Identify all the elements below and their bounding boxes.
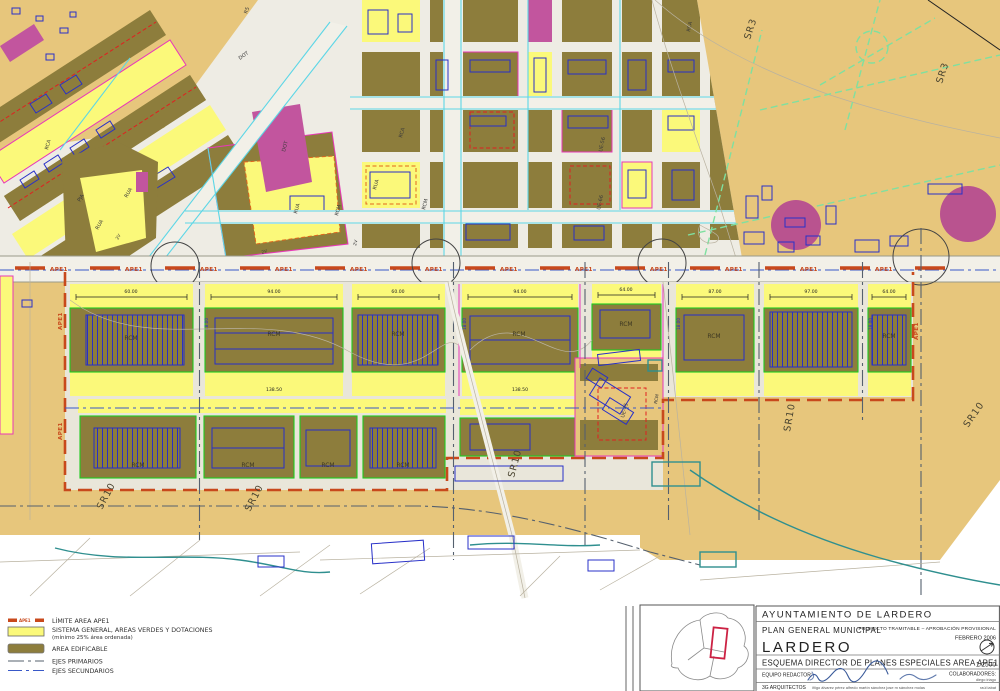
label-rcm: RCM xyxy=(882,333,895,340)
label-ape1: APE1 xyxy=(350,267,368,273)
olive-swatch xyxy=(8,644,44,653)
label-rcm: RCM xyxy=(124,335,137,342)
plan-sheet: DOT DOT RUA RUA RUA RUA PJA RCA RCA RCA … xyxy=(0,0,1000,691)
city-name: LARDERO xyxy=(762,639,852,656)
label-rcm: RCM xyxy=(267,331,280,338)
label-rcm: RCM xyxy=(321,462,334,469)
dim-b8: 64.00 xyxy=(882,289,895,295)
colaborador-name-2: raúl iabat xyxy=(980,685,997,690)
dim-small: 18.00 xyxy=(868,318,873,330)
label-ape1: APE1 xyxy=(500,267,518,273)
municipality-title: AYUNTAMIENTO DE LARDERO xyxy=(762,610,933,621)
dim-b4: 94.00 xyxy=(513,289,526,295)
ue-zone: UE-45 RCM xyxy=(575,358,663,456)
legend-sg-label: SISTEMA GENERAL, AREAS VERDES Y DOTACION… xyxy=(52,627,212,634)
label-rcm: RCM xyxy=(707,333,720,340)
label-ape1: APE1 xyxy=(875,267,893,273)
dim-small: 18.00 xyxy=(462,318,467,330)
sheet-title: ESQUEMA DIRECTOR DE PLANES ESPECIALES AR… xyxy=(762,659,998,668)
label-rcm: RCM xyxy=(131,462,144,469)
dim-bottom2: 138.50 xyxy=(512,387,528,393)
dim-small: 18.00 xyxy=(204,318,209,330)
label-ape1: APE1 xyxy=(275,267,293,273)
colaborador-name-1: diego iriago xyxy=(976,677,996,682)
label-ape1: APE1 xyxy=(58,312,64,330)
dim-b1: 60.00 xyxy=(124,289,137,295)
north-arrow-icon xyxy=(980,640,994,654)
label-rcm: RCM xyxy=(396,462,409,469)
ape1-swatch-text: APE1 xyxy=(19,618,31,623)
firm-name: 3G ARQUITECTOS xyxy=(762,685,806,691)
legend-limit-label: LÍMITE AREA APE1 xyxy=(52,616,110,625)
label-ape1: APE1 xyxy=(58,422,64,440)
inset-frame xyxy=(640,605,754,691)
label-ape1: APE1 xyxy=(800,267,818,273)
dim-b3: 60.00 xyxy=(391,289,404,295)
location-inset xyxy=(626,605,754,691)
title-block: AYUNTAMIENTO DE LARDERO PLAN GENERAL MUN… xyxy=(756,606,1000,691)
map-canvas: DOT DOT RUA RUA RUA RUA PJA RCA RCA RCA … xyxy=(0,0,1000,691)
label-rcm: RCM xyxy=(241,462,254,469)
equipo-redactor-label: EQUIPO REDACTOR: xyxy=(762,673,812,679)
dim-bottom1: 138.50 xyxy=(266,387,282,393)
label-rcm: RCM xyxy=(391,331,404,338)
legend-edificable-row: AREA EDIFICABLE xyxy=(8,644,108,653)
dim-small: 18.00 xyxy=(676,318,681,330)
label-ape1: APE1 xyxy=(425,267,443,273)
label-rcm: RCM xyxy=(619,321,632,328)
label-ape1: APE1 xyxy=(200,267,218,273)
ape1-swatch-dash xyxy=(8,619,17,623)
yellow-swatch xyxy=(8,627,44,636)
label-ape1: APE1 xyxy=(914,322,920,340)
legend-ejes-primarios-label: EJES PRIMARIOS xyxy=(52,659,103,666)
dim-b5: 64.00 xyxy=(619,287,632,293)
dim-b2: 94.00 xyxy=(267,289,280,295)
legend-sg-sublabel: (mínimo 25% área ordenada) xyxy=(52,634,133,641)
sheet-scale: 1/2500 xyxy=(976,662,997,669)
label-rcm: RCM xyxy=(512,331,525,338)
legend-edificable-label: AREA EDIFICABLE xyxy=(52,646,108,653)
label-ape1: APE1 xyxy=(125,267,143,273)
project-status: PROYECTO TRAMITABLE – APROBACIÓN PROVISI… xyxy=(858,625,996,632)
ape1-swatch-dash xyxy=(35,619,44,623)
legend-ejes-secundarios-label: EJES SECUNDARIOS xyxy=(52,668,114,675)
label-ape1: APE1 xyxy=(725,267,743,273)
team-names: iñigo álvarez pérez alfredo martín sánch… xyxy=(812,685,925,690)
label-ape1: APE1 xyxy=(650,267,668,273)
dim-b7: 97.00 xyxy=(804,289,817,295)
label-ape1: APE1 xyxy=(575,267,593,273)
dim-b6: 87.00 xyxy=(708,289,721,295)
urban-fabric: DOT DOT RUA RUA RUA RUA PJA RCA RCA RCA … xyxy=(0,0,745,293)
